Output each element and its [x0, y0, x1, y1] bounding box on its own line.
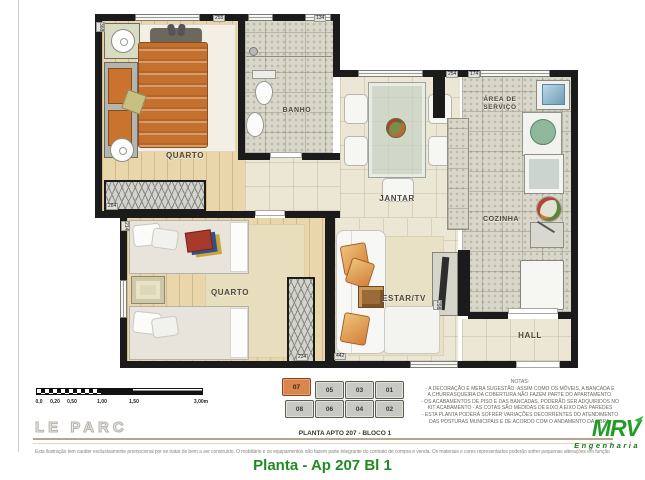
bed-pillow — [151, 315, 180, 338]
chair — [344, 136, 368, 166]
washing-machine-drum — [530, 119, 556, 145]
development-logo: LE PARC — [35, 419, 128, 436]
laundry-tank-basin — [542, 84, 565, 105]
bed-pillow — [151, 227, 180, 250]
room-label-bathroom: BANHO — [262, 107, 332, 114]
floor-plan-page: QUARTO BANHO JANTAR ÁREA DE SERVIÇO C — [0, 0, 645, 480]
dimension-label: 298 — [433, 300, 442, 310]
room-label-living: ESTAR/TV — [368, 294, 440, 303]
page-title: Planta - Ap 207 Bl 1 — [0, 457, 645, 474]
salad-bowl — [536, 196, 562, 222]
unit-cell: 08 — [285, 400, 314, 418]
unit-cell: 04 — [345, 400, 374, 418]
window — [120, 280, 127, 318]
notes-line: A CHURRASQUEIRA DA COBERTURA NÃO FAZEM P… — [398, 392, 642, 399]
brand-subtitle: Engenharia — [552, 441, 640, 450]
flower-centerpiece — [386, 118, 406, 138]
room-label-bedroom1: QUARTO — [140, 151, 230, 160]
scale-tick-label: 0,0 — [36, 399, 43, 405]
shower-divider — [246, 56, 332, 57]
door-leaf — [255, 210, 285, 216]
wall — [558, 312, 578, 319]
dimension-label: 254 — [446, 71, 458, 78]
divider-line — [33, 438, 613, 440]
door-leaf — [508, 308, 558, 314]
scale-segment-solid — [101, 389, 133, 394]
page-left-border — [18, 0, 19, 452]
notes-title: NOTAS: — [398, 379, 642, 386]
double-bed — [138, 42, 208, 148]
wardrobe — [287, 277, 315, 363]
wall — [571, 70, 578, 368]
plan-caption: PLANTA APTO 207 - BLOCO 1 — [283, 430, 407, 437]
block-position-diagram: 07 05 03 01 08 06 04 02 — [285, 381, 404, 418]
window — [410, 361, 458, 368]
wall — [325, 215, 335, 363]
scale-segment-checker — [37, 389, 101, 394]
dimension-label: 284 — [106, 203, 118, 210]
door-opening — [516, 361, 560, 368]
unit-cell: 06 — [315, 400, 344, 418]
wall — [120, 361, 578, 368]
sofa-seat — [384, 306, 440, 354]
scale-tick-label: 0,50 — [67, 399, 77, 405]
divider-line — [33, 443, 613, 444]
wall — [468, 312, 508, 319]
corridor-floor — [245, 153, 340, 211]
service-label-line1: ÁREA DE — [483, 96, 516, 103]
fridge — [520, 260, 564, 310]
kitchen-pillar — [447, 118, 469, 230]
dimension-label: 368 — [96, 22, 105, 32]
wardrobe — [104, 180, 206, 211]
chair — [344, 94, 368, 124]
room-label-hall: HALL — [500, 331, 560, 340]
unit-cell: 02 — [375, 400, 404, 418]
unit-cell: 01 — [375, 381, 404, 399]
bed-blanket — [230, 222, 248, 272]
notes-line: KIT ACABAMENTO - AS COTAS SÃO MEDIDAS DE… — [398, 405, 642, 412]
wall — [458, 250, 470, 316]
scale-tick-label: 1,00 — [97, 399, 107, 405]
wall — [238, 153, 270, 160]
toilet — [252, 70, 276, 79]
scale-bar: 0,0 0,20 0,50 1,00 1,50 3,00m — [36, 388, 216, 410]
scale-segment-line — [133, 389, 202, 394]
wall — [302, 153, 340, 160]
nightstand — [131, 276, 165, 304]
window — [358, 70, 423, 77]
window — [480, 70, 550, 77]
bathroom-sink — [246, 112, 264, 137]
wall — [238, 14, 245, 160]
floor-lamp — [110, 138, 134, 162]
stove — [524, 154, 564, 194]
hall-floor — [462, 319, 571, 361]
unit-cell-highlighted: 07 — [282, 378, 311, 396]
dimension-label: 255 — [213, 15, 225, 22]
magazines — [185, 229, 214, 252]
shower-head — [249, 47, 258, 56]
legal-disclaimer: Esta ilustração tem caráter exclusivamen… — [35, 449, 611, 455]
room-label-dining: JANTAR — [362, 194, 432, 203]
service-label-line2: SERVIÇO — [483, 104, 516, 111]
brand-name: MRV — [592, 418, 640, 439]
window — [135, 14, 200, 21]
brand-logo: MRV Engenharia — [552, 418, 640, 450]
scale-bar-rule — [36, 388, 203, 395]
scale-tick-label: 0,20 — [50, 399, 60, 405]
floor-plan: QUARTO BANHO JANTAR ÁREA DE SERVIÇO C — [0, 0, 645, 375]
dimension-label: 234 — [296, 354, 308, 361]
window — [248, 14, 273, 21]
room-label-bedroom2: QUARTO — [195, 288, 265, 297]
scale-tick-label: 3,00m — [194, 399, 208, 405]
sofa-pillow — [340, 312, 371, 346]
dimension-label: 442 — [334, 353, 346, 360]
table-lamp — [111, 29, 135, 53]
dimension-label: 214 — [121, 221, 130, 231]
dimension-label: 174 — [468, 71, 480, 78]
bed-blanket — [230, 308, 248, 358]
unit-cell: 03 — [345, 381, 374, 399]
scale-tick-label: 1,50 — [129, 399, 139, 405]
wall — [333, 14, 340, 77]
unit-cell: 05 — [315, 381, 344, 399]
room-label-kitchen: COZINHA — [466, 216, 536, 223]
wall — [127, 211, 255, 218]
dimension-label: 134 — [314, 15, 326, 22]
wall — [433, 70, 445, 118]
room-label-service: ÁREA DE SERVIÇO — [464, 96, 536, 112]
door-leaf — [270, 152, 302, 158]
wall — [95, 14, 102, 218]
